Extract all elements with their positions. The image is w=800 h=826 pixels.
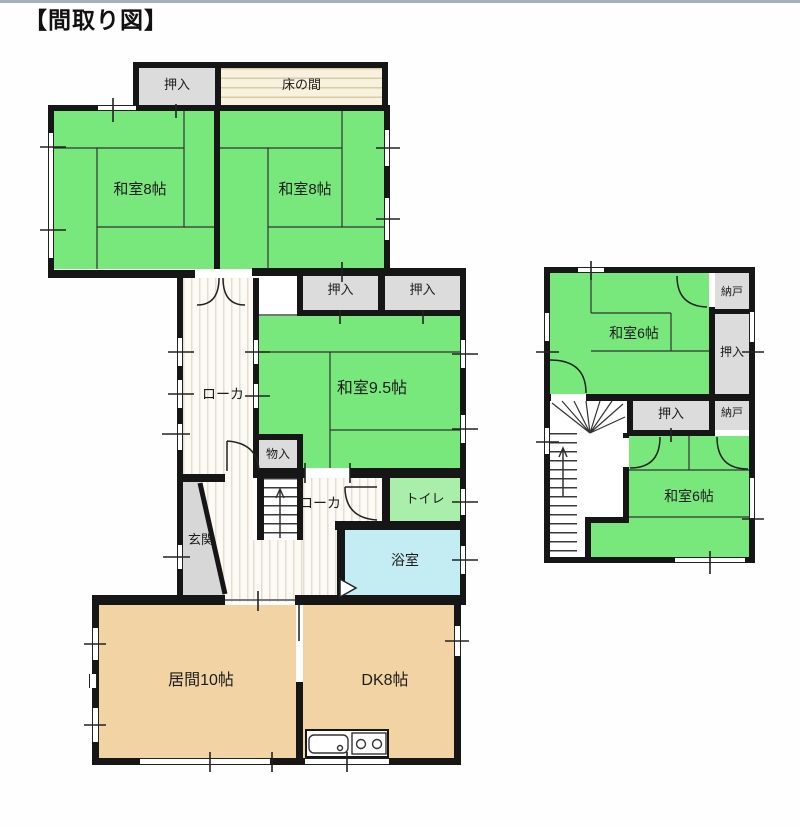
wall <box>92 595 225 605</box>
wall <box>544 394 551 401</box>
window-marker <box>454 626 461 656</box>
label-washitsu6-lower: 和室6帖 <box>619 489 759 504</box>
corridor-bath-side <box>303 521 337 602</box>
label-genkan: 玄関 <box>181 533 221 547</box>
label-living: 居間10帖 <box>111 672 291 690</box>
wall <box>335 521 466 530</box>
wall <box>133 62 388 68</box>
wall <box>297 310 466 316</box>
window-marker <box>749 312 755 342</box>
label-roka-lower: ローカ <box>288 496 352 511</box>
window-marker <box>675 557 745 563</box>
window-marker <box>177 545 183 569</box>
label-washitsu6-upper: 和室6帖 <box>564 326 704 341</box>
wall <box>48 270 195 278</box>
label-oshiire-lower-2f: 押入 <box>635 407 707 421</box>
label-washitsu8-left: 和室8帖 <box>60 182 220 199</box>
window-marker <box>460 340 466 368</box>
label-monoire: 物入 <box>257 448 299 461</box>
label-toilet: トイレ <box>391 492 459 506</box>
window-marker <box>140 758 270 765</box>
window-marker <box>98 105 136 111</box>
wall <box>382 478 390 523</box>
wall <box>337 521 345 602</box>
wall <box>382 62 388 108</box>
stairs-2f-landing <box>577 433 623 517</box>
wall <box>544 267 755 273</box>
room-washitsu6-lower-ext <box>591 523 629 557</box>
label-nando-upper: 納戸 <box>714 286 750 298</box>
window-marker <box>177 338 183 366</box>
window-marker <box>544 428 550 454</box>
wall <box>255 468 305 478</box>
window-marker <box>89 674 97 688</box>
wall <box>252 268 466 276</box>
stairs-2f-winder <box>550 401 627 433</box>
window-marker <box>177 380 183 408</box>
window-marker <box>460 489 466 515</box>
label-oshiire-top: 押入 <box>139 78 215 92</box>
wall <box>544 267 550 563</box>
sliding-door-line <box>298 605 300 641</box>
wall <box>591 517 629 523</box>
window-marker <box>460 415 466 443</box>
label-washitsu8-right: 和室8帖 <box>225 182 385 199</box>
corridor-lower-mid <box>253 540 303 602</box>
wall <box>627 430 715 436</box>
window-marker <box>544 313 550 341</box>
label-tokonoma: 床の間 <box>221 78 382 92</box>
window-marker <box>48 133 54 258</box>
window-marker <box>305 758 389 765</box>
wall <box>585 517 591 563</box>
sliding-door-line <box>259 314 297 316</box>
stairs-2f-run <box>550 433 577 557</box>
label-oshiire-right-2f: 押入 <box>714 346 750 359</box>
wall <box>296 682 303 758</box>
window-marker <box>177 424 183 450</box>
page-title: 【間取り図】 <box>24 8 168 33</box>
window-marker <box>253 340 259 364</box>
window-marker <box>578 267 604 273</box>
window-marker <box>384 130 390 166</box>
label-nando-lower: 納戸 <box>714 407 750 419</box>
wall <box>253 434 303 440</box>
wall <box>350 468 466 478</box>
kitchen-counter <box>305 729 389 758</box>
label-oshiire-mid-right: 押入 <box>385 283 460 297</box>
window-marker <box>460 546 466 574</box>
top-rule <box>0 0 800 3</box>
label-washitsu95: 和室9.5帖 <box>282 380 462 398</box>
wall <box>295 595 466 605</box>
wall <box>257 478 264 540</box>
label-bath: 浴室 <box>375 553 435 568</box>
floor-plan-image: 【間取り図】 <box>0 0 800 826</box>
wall <box>586 394 753 401</box>
window-marker <box>92 708 99 742</box>
window-marker <box>384 198 390 240</box>
wall <box>177 474 225 482</box>
sliding-door-line <box>225 599 295 601</box>
label-roka-upper: ローカ <box>185 387 261 402</box>
wall <box>623 433 629 438</box>
label-oshiire-mid-left: 押入 <box>303 283 378 297</box>
wall <box>709 309 749 314</box>
hall-strip <box>259 276 297 316</box>
label-dk: DK8帖 <box>305 672 465 690</box>
wall <box>627 401 633 433</box>
window-marker <box>92 628 99 660</box>
